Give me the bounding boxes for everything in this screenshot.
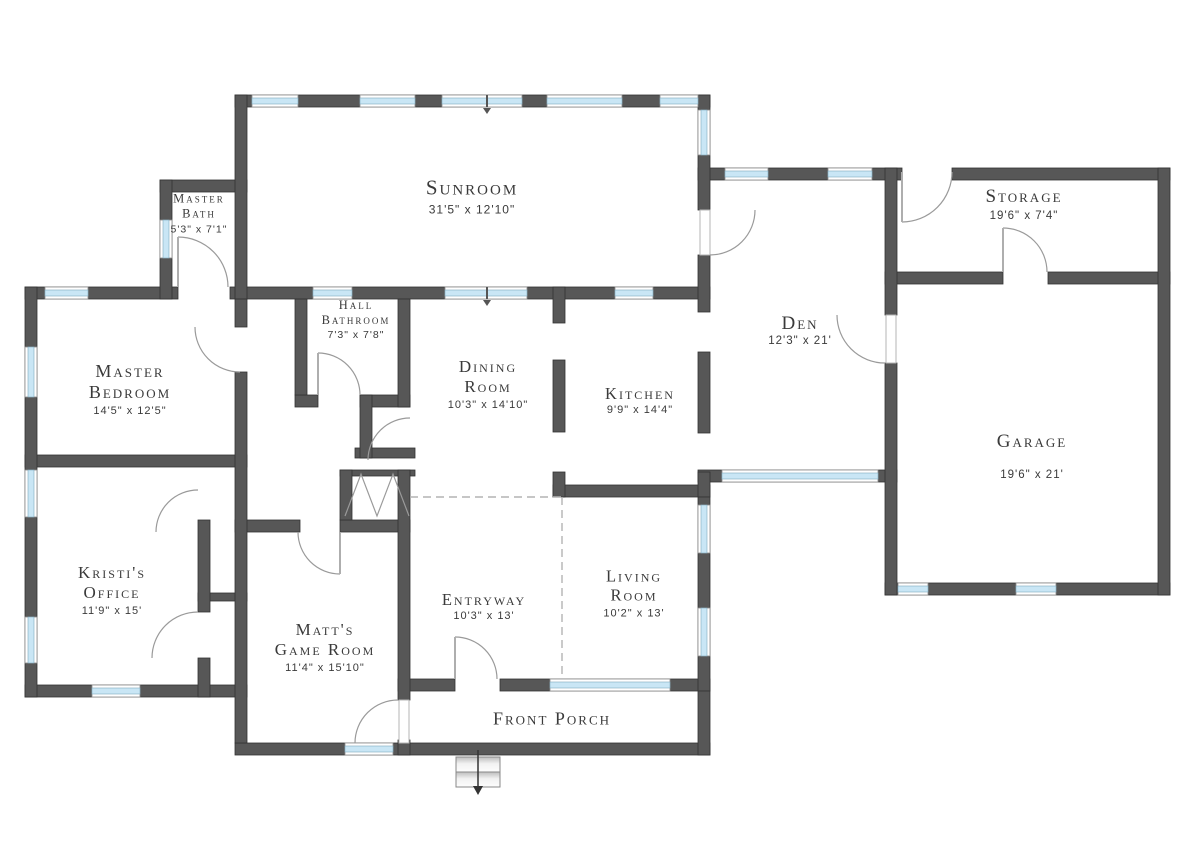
dashed-boundaries-layer	[410, 497, 562, 679]
floor-plan-page: Sunroom31'5" x 12'10"Master Bath5'3" x 7…	[0, 0, 1200, 850]
window-tick-marks	[483, 95, 491, 306]
doors-layer	[152, 172, 1047, 743]
walls-layer	[25, 95, 1170, 755]
floor-plan-drawing	[0, 0, 1200, 850]
floor-plan-svg	[0, 0, 1200, 850]
porch-steps	[456, 750, 500, 795]
